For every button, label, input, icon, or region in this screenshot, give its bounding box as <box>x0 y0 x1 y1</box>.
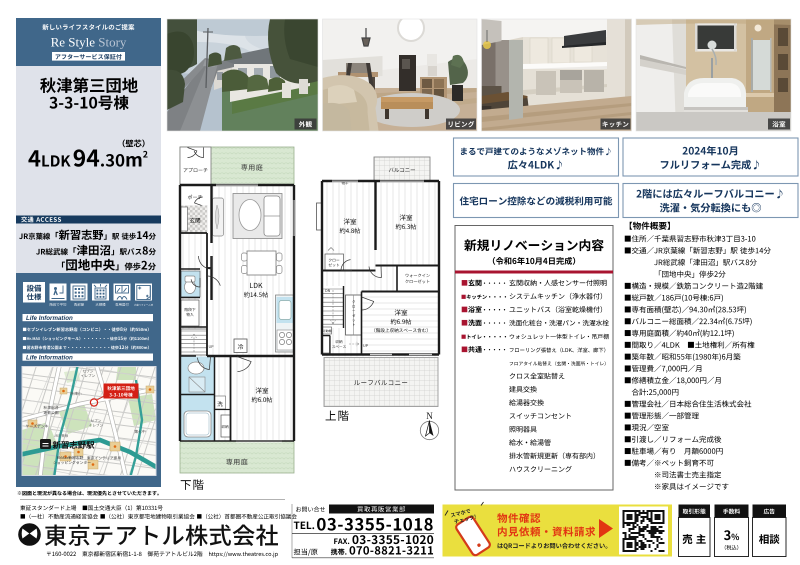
svg-text:Life Information: Life Information <box>26 315 73 322</box>
svg-text:Re Style Story: Re Style Story <box>51 35 127 50</box>
svg-text:Life Information: Life Information <box>26 355 73 362</box>
svg-text:N: N <box>426 411 433 421</box>
